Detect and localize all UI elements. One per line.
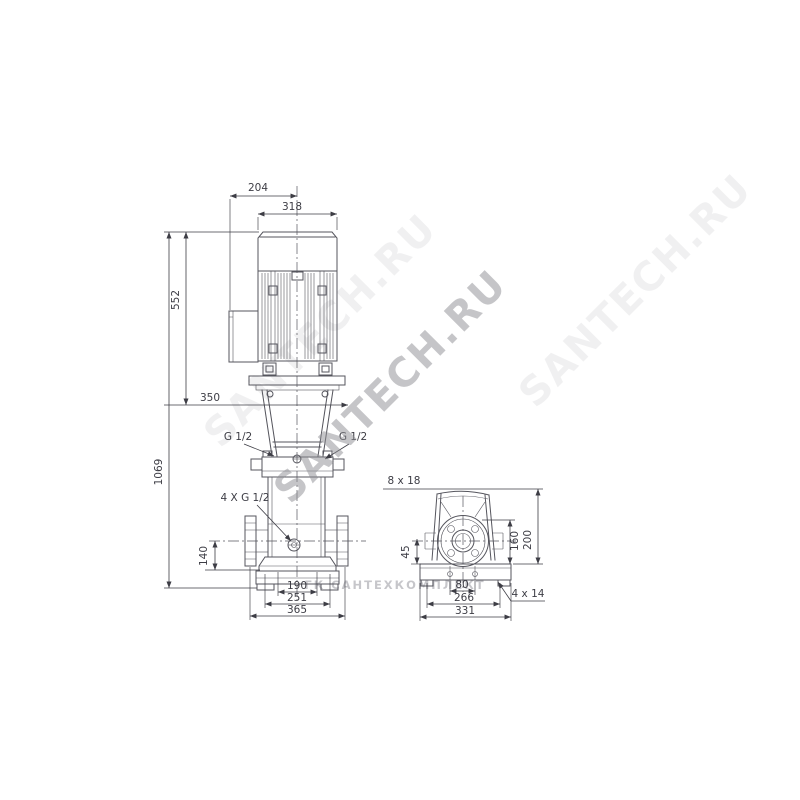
- side-view-dimensions: 8 x 18 45 160 200 80 266 331 4 x 14: [383, 475, 545, 621]
- dim-1069: 1069: [153, 459, 165, 486]
- flange-bolt-hole: [448, 526, 455, 533]
- dim-45: 45: [400, 545, 412, 558]
- dim-200: 200: [522, 530, 534, 550]
- motor-lifting-lug: [292, 272, 303, 280]
- dim-318: 318: [282, 201, 302, 213]
- dim-190: 190: [287, 580, 307, 592]
- terminal-box: [229, 311, 258, 362]
- port-label-left: G 1/2: [224, 431, 252, 443]
- side-view: [412, 491, 516, 592]
- watermark-faint-2: SANTECH.RU: [510, 165, 761, 416]
- dim-204: 204: [248, 182, 268, 194]
- dim-80: 80: [455, 579, 468, 591]
- dim-331: 331: [455, 605, 475, 617]
- pump-head-tab-left: [251, 459, 262, 470]
- dim-365: 365: [287, 604, 307, 616]
- leader-g12-left: [244, 444, 274, 456]
- dim-266: 266: [454, 592, 474, 604]
- slot-label: 8 x 18: [388, 475, 421, 487]
- dim-140: 140: [198, 546, 210, 566]
- pump-base: [259, 557, 336, 571]
- leader-drain: [257, 505, 291, 541]
- flange-bolt-hole: [472, 526, 479, 533]
- dim-350: 350: [200, 392, 220, 404]
- dim-251: 251: [287, 592, 307, 604]
- pump-dimensional-drawing: SANTECH.RU SANTECH.RU ГК САНТЕХКОМПЛЕКТ: [0, 0, 800, 800]
- hole-label: 4 x 14: [512, 588, 545, 600]
- drain-label: 4 X G 1/2: [221, 492, 270, 504]
- flange-bolt-hole: [448, 550, 455, 557]
- dim-160: 160: [509, 531, 521, 551]
- motor-fan-cover: [258, 232, 337, 271]
- dim-552: 552: [170, 290, 182, 310]
- flange-bolt-hole: [472, 550, 479, 557]
